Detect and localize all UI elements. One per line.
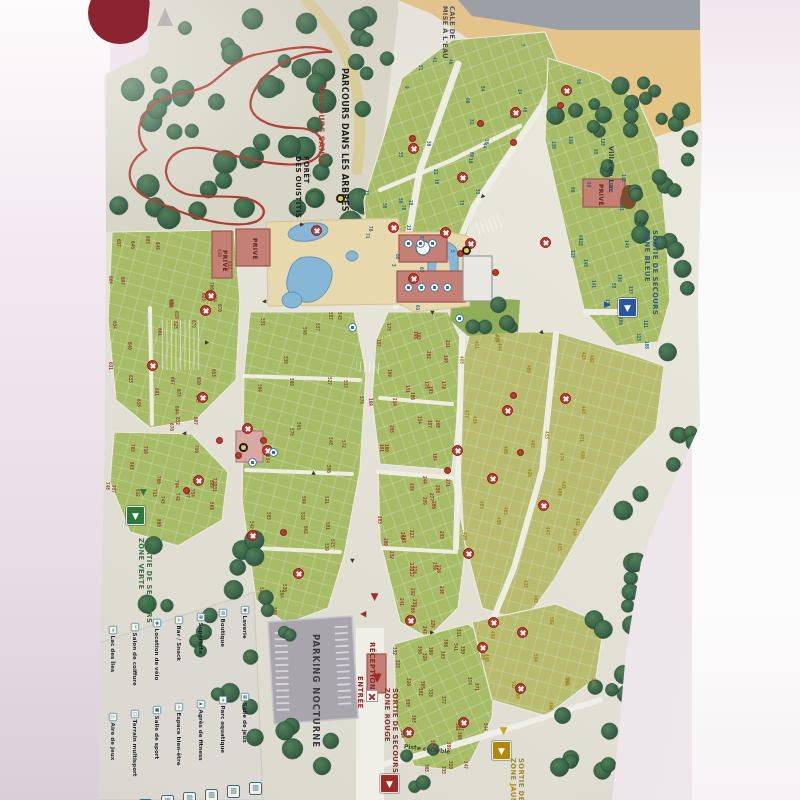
tree-icon <box>110 196 128 214</box>
tree-icon <box>601 723 617 739</box>
tree-icon <box>681 153 694 166</box>
tree-icon <box>588 680 603 695</box>
tree-icon <box>253 134 270 151</box>
tree-icon <box>673 103 690 120</box>
tree-icon <box>245 547 264 566</box>
tree-icon <box>243 650 258 665</box>
tree-icon <box>466 320 480 334</box>
tree-icon <box>623 123 638 138</box>
tree-icon <box>491 297 507 313</box>
tree-icon <box>595 107 611 123</box>
tree-icon <box>427 744 439 756</box>
tree-icon <box>612 77 630 95</box>
tree-icon <box>348 54 364 70</box>
tree-icon <box>145 536 163 554</box>
terrace-steps-hatch <box>160 320 202 370</box>
tree-icon <box>296 13 317 34</box>
tree-icon <box>569 103 583 117</box>
pool-building-icon <box>416 241 430 255</box>
tree-icon <box>601 159 614 172</box>
zone-plot-lines <box>242 312 366 624</box>
tree-icon <box>617 685 635 703</box>
tree-icon <box>621 600 634 613</box>
tree-icon <box>259 590 274 605</box>
tree-icon <box>614 501 633 520</box>
building-commerces <box>397 271 465 302</box>
tree-icon <box>307 191 323 207</box>
tree-icon <box>652 170 667 185</box>
zone-plot-lines <box>372 312 462 470</box>
campground-map: PARCOURS DANS LES ARBRES PARCOURS SANTÉ … <box>0 0 800 800</box>
tree-icon <box>654 236 667 249</box>
tree-icon <box>161 599 174 612</box>
tree-icon <box>637 77 649 89</box>
tree-icon <box>215 172 232 189</box>
tree-icon <box>211 688 224 701</box>
tree-icon <box>323 733 339 749</box>
stairs-hatch <box>473 214 502 236</box>
tree-icon <box>624 95 639 110</box>
tree-icon <box>359 33 373 47</box>
tree-icon <box>319 154 333 168</box>
tree-icon <box>656 113 668 125</box>
tree-icon <box>682 131 698 147</box>
tree-icon <box>208 94 224 110</box>
tree-icon <box>635 210 649 224</box>
tree-icon <box>667 242 684 259</box>
tree-icon <box>292 59 311 78</box>
building-reception <box>367 654 386 693</box>
building-sanitaire-ouest <box>236 431 263 462</box>
tree-icon <box>380 52 394 66</box>
road <box>150 308 152 424</box>
tree-icon <box>278 135 300 157</box>
tree-icon <box>630 188 643 201</box>
tree-icon <box>138 595 156 613</box>
tree-icon <box>401 750 413 762</box>
tree-icon <box>624 109 638 123</box>
tree-icon <box>276 722 295 741</box>
tree-icon <box>662 538 678 554</box>
stairs-hatch <box>356 361 381 374</box>
tree-icon <box>601 757 616 772</box>
tree-icon <box>587 120 600 133</box>
tree-icon <box>628 553 647 572</box>
tree-icon <box>606 683 619 696</box>
tree-icon <box>589 99 600 110</box>
zone-plot-lines <box>378 470 466 638</box>
swimming-pool <box>346 251 358 261</box>
tree-icon <box>633 486 648 501</box>
building-villa-du-lac <box>583 179 625 207</box>
tree-icon <box>614 665 633 684</box>
tree-icon <box>196 624 211 639</box>
tree-icon <box>261 604 274 617</box>
tree-icon <box>555 708 571 724</box>
tree-icon <box>284 629 296 641</box>
tree-icon <box>194 645 206 657</box>
tree-icon <box>230 559 246 575</box>
tree-icon <box>622 584 639 601</box>
building-prive-2 <box>236 229 270 266</box>
tree-icon <box>547 107 565 125</box>
tree-icon <box>499 315 514 330</box>
tree-icon <box>360 67 373 80</box>
tree-icon <box>151 67 168 84</box>
building-sanitaires <box>463 256 492 301</box>
map-graphics <box>0 0 800 800</box>
photo-background-left <box>0 0 110 800</box>
tree-icon <box>355 101 371 117</box>
tree-icon <box>659 343 677 361</box>
tree-icon <box>167 124 182 139</box>
tree-icon <box>203 608 218 623</box>
tree-icon <box>185 124 199 138</box>
tree-icon <box>624 571 638 585</box>
tree-icon <box>550 758 568 776</box>
building-prive-1 <box>212 231 232 278</box>
photo-of-campground-map: PARCOURS DANS LES ARBRES PARCOURS SANTÉ … <box>0 0 800 800</box>
tree-icon <box>121 78 144 101</box>
tree-icon <box>632 226 650 244</box>
swimming-pool <box>282 292 302 308</box>
tree-icon <box>258 75 281 98</box>
tree-icon <box>242 699 257 714</box>
tree-icon <box>178 22 191 35</box>
zone-plot-lines <box>110 432 228 546</box>
tree-icon <box>674 260 691 277</box>
tree-icon <box>652 534 669 551</box>
tree-icon <box>666 458 680 472</box>
tree-icon <box>282 739 303 760</box>
tree-icon <box>289 200 306 217</box>
tree-icon <box>224 580 243 599</box>
tree-icon <box>307 73 327 93</box>
tree-icon <box>416 775 430 789</box>
tree-icon <box>666 572 679 585</box>
tree-icon <box>242 9 263 30</box>
tree-icon <box>313 757 331 775</box>
tree-icon <box>594 620 612 638</box>
tree-icon <box>668 184 682 198</box>
photo-background-right <box>692 0 800 800</box>
tree-icon <box>623 616 642 635</box>
tree-icon <box>246 729 263 746</box>
tree-icon <box>680 281 694 295</box>
tree-icon <box>349 10 370 31</box>
tree-icon <box>639 92 652 105</box>
